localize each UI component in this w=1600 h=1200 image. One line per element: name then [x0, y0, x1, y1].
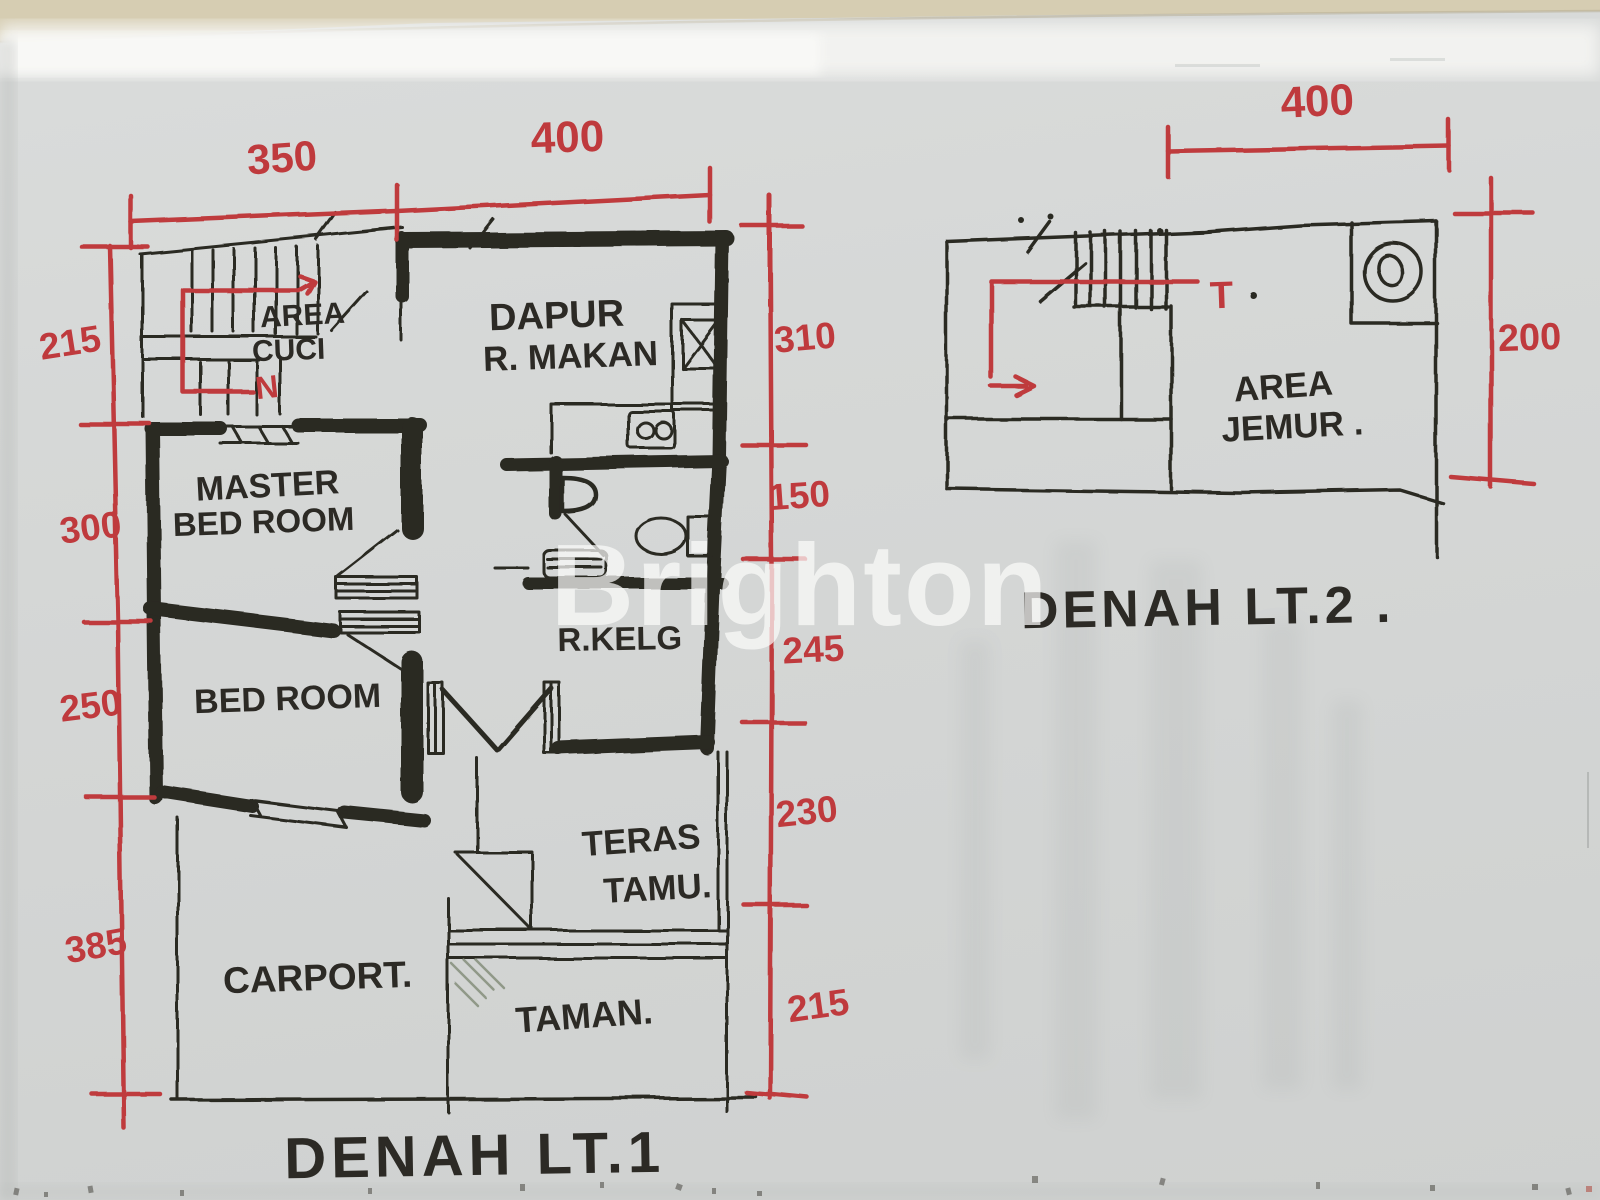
dim-right-230: 230 [774, 788, 840, 835]
lt1-master-window [220, 426, 298, 443]
lt1-front-wall [558, 742, 708, 748]
lt1-sliding-window-upper-lines [336, 584, 417, 591]
lt2-bottom-edge [947, 489, 1443, 503]
dim-lt2-right-200: 200 [1497, 316, 1562, 360]
lt1-sink-basin-right [655, 422, 671, 438]
lt1-entry-step [455, 852, 532, 930]
lt2-stair-route-arrow [991, 377, 1034, 395]
lt2-stair-treads [1074, 230, 1168, 309]
lt1-stair-direction-label: N [253, 368, 280, 406]
room-label-teras-2: TAMU. [602, 866, 712, 911]
room-label-dapur-1: DAPUR [488, 293, 625, 340]
brighton-watermark: Brighton [470, 518, 1130, 652]
red-speck [1586, 1186, 1592, 1192]
room-label-carport: CARPORT. [222, 954, 412, 1002]
room-label-master-2: BED ROOM [172, 500, 355, 543]
room-label-bedroom: BED ROOM [194, 677, 382, 722]
paper-bottom-shadow [0, 1184, 1600, 1200]
lt1-teras-floor-lines [448, 930, 727, 958]
dim-top-400: 400 [530, 112, 605, 164]
lt1-title: DENAH LT.1 [284, 1120, 666, 1192]
room-label-jemur-2: JEMUR . [1220, 403, 1364, 449]
dim-left-300: 300 [57, 503, 123, 551]
lt1-bedroom-divider-wall [150, 608, 333, 630]
room-label-jemur-1: AREA [1232, 364, 1334, 410]
room-label-area-cuci-1: AREA [259, 297, 346, 334]
lt2-stair-direction-label: T [1209, 275, 1234, 318]
room-label-dapur-2: R. MAKAN [482, 334, 658, 379]
dim-top-350: 350 [245, 132, 318, 184]
dim-left-215: 215 [36, 318, 103, 368]
room-label-teras-1: TERAS [581, 817, 702, 864]
lt1-plot-bottom-line [172, 1098, 757, 1100]
lt1-kitchen-top-wall [403, 238, 726, 240]
lt2-outline [947, 221, 1443, 556]
lt1-sliding-window-upper [336, 577, 417, 598]
lt1-stair-route-arrow [298, 276, 314, 293]
paper-left-shadow [0, 40, 16, 1200]
lt1-top-dim-line [131, 195, 710, 222]
lt2-t-dot [1251, 293, 1258, 300]
lt1-garage-door [250, 800, 346, 827]
dim-lt2-top-400: 400 [1279, 75, 1355, 128]
lt1-sink-basin-left [637, 422, 653, 438]
lt1-double-door-m [443, 688, 551, 750]
floorplan-sketch-photo: AREA CUCI N DAPUR R. MAKAN MASTER BED RO… [0, 0, 1600, 1200]
lt2-top-edge [947, 221, 1436, 242]
dim-left-250: 250 [57, 681, 123, 729]
dim-right-150: 150 [767, 473, 831, 518]
lt2-inner-verticals [1121, 306, 1171, 489]
lt2-washer-drum [1364, 243, 1422, 301]
dim-right-310: 310 [772, 314, 837, 360]
dim-right-215: 215 [785, 981, 852, 1030]
lt1-stair-area-top-line [140, 228, 403, 254]
lt1-kitchen-sink-box [628, 411, 674, 448]
lt1-kitchen-shaft-x [682, 320, 718, 368]
lt2-washer-inner [1373, 251, 1406, 289]
dim-left-385: 385 [62, 920, 130, 971]
lt2-top-dim-line [1168, 146, 1449, 151]
room-label-area-cuci-2: CUCI [251, 333, 325, 369]
lt1-sliding-window-lower [340, 612, 419, 632]
lt1-bedroom-door-swing [347, 634, 401, 669]
lt1-bath-top-wall [507, 461, 722, 465]
lt1-sliding-window-lower-lines [340, 619, 419, 626]
lt1-bath-door-leaf [563, 478, 596, 512]
lt1-right-dim-line [770, 215, 772, 1098]
paper-top-highlight-left [0, 34, 820, 74]
lt1-right-wall [707, 238, 722, 748]
